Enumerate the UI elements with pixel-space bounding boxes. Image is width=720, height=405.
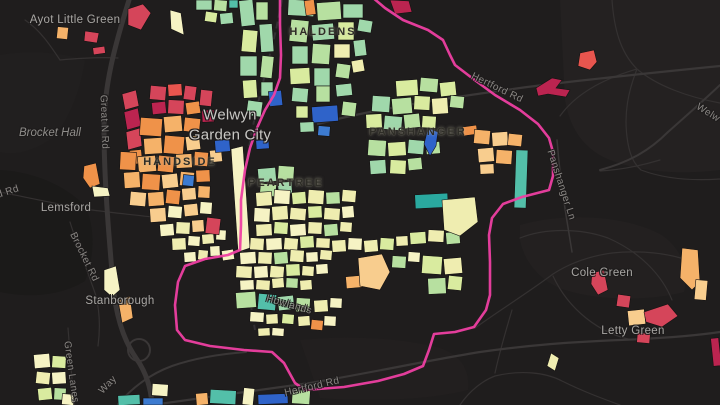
map-layers — [0, 0, 720, 405]
parcel-group-peartree — [235, 165, 462, 336]
parcel-group-top-mint — [196, 0, 238, 25]
boundary-line — [175, 0, 553, 390]
map-canvas[interactable]: Ayot Little Green Brocket Hall Lemsford … — [0, 0, 720, 405]
parcel-group-southwest — [33, 353, 74, 405]
